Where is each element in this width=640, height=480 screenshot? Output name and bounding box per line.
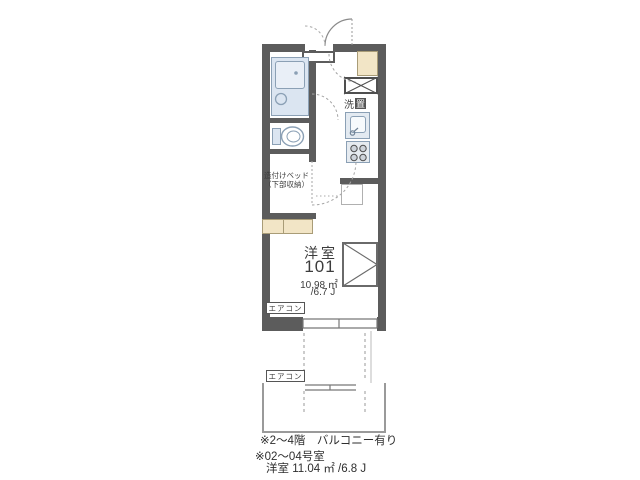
floor-plan: 造付けベッド （下部収納） 洗 置 洋室 101 10.98 ㎡ /6.7 J … <box>0 0 640 480</box>
shoe-cabinet <box>357 51 378 76</box>
wall-bath-toilet <box>268 118 316 123</box>
washer-label-char2: 置 <box>355 98 366 109</box>
bed-label-line2: （下部収納） <box>263 180 310 189</box>
washer-label: 洗 置 <box>344 96 366 111</box>
toilet-tank <box>272 128 281 145</box>
bed-label-line1: 造付けベッド <box>263 171 310 180</box>
washer-space <box>344 77 378 94</box>
aircon-label-balcony: エアコン <box>266 370 305 382</box>
room-window <box>303 319 377 328</box>
wall-hall-divider <box>309 50 316 162</box>
bathtub <box>275 61 305 89</box>
counter-space <box>341 184 363 205</box>
note-room-area-alt: 洋室 11.04 ㎡ /6.8 J <box>266 460 366 476</box>
wall-bottom-right <box>377 317 386 331</box>
aircon-label-room: エアコン <box>266 302 305 314</box>
washer-label-char1: 洗 <box>344 96 354 111</box>
wall-bottom-left <box>262 317 303 331</box>
room-number: 101 <box>300 257 340 277</box>
built-in-bed <box>262 219 313 234</box>
stove <box>346 141 370 163</box>
balcony <box>262 383 386 433</box>
wall-right <box>378 44 386 331</box>
toilet-bowl-icon <box>282 127 304 146</box>
bed-label: 造付けベッド （下部収納） <box>263 171 310 189</box>
note-balcony-floors: ※2～4階 バルコニー有り <box>260 432 397 448</box>
room-tatami-count: /6.7 J <box>292 287 354 298</box>
kitchen-sink-unit <box>345 112 370 139</box>
sink-basin <box>350 116 366 133</box>
wall-toilet-bed <box>268 149 316 154</box>
entrance-door-arc <box>305 19 352 46</box>
bed-divider <box>283 220 284 233</box>
